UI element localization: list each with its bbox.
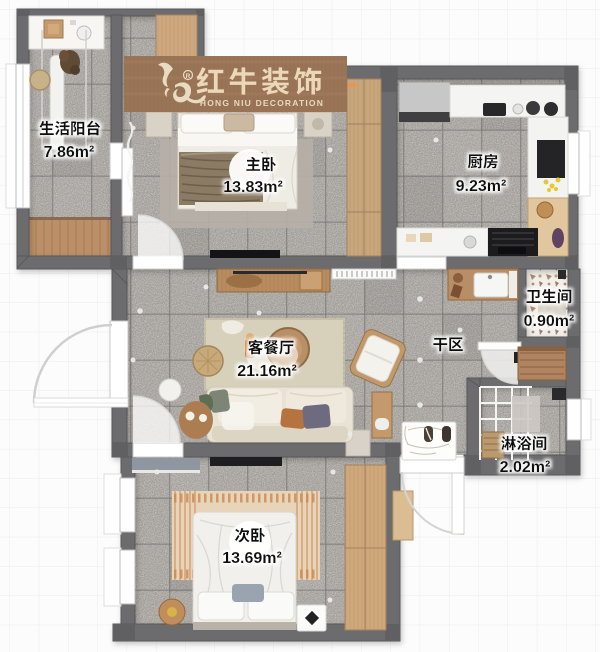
svg-text:21.16m²: 21.16m² xyxy=(237,363,297,380)
svg-text:7.86m²: 7.86m² xyxy=(44,144,95,161)
svg-text:13.83m²: 13.83m² xyxy=(223,179,283,196)
svg-text:13.69m²: 13.69m² xyxy=(222,550,282,567)
svg-text:R: R xyxy=(186,73,191,80)
svg-text:2.02m²: 2.02m² xyxy=(500,459,551,476)
svg-text:0.90m²: 0.90m² xyxy=(524,313,575,330)
svg-text:9.23m²: 9.23m² xyxy=(456,178,507,195)
svg-text:HONG NIU DECORATION: HONG NIU DECORATION xyxy=(200,98,324,108)
